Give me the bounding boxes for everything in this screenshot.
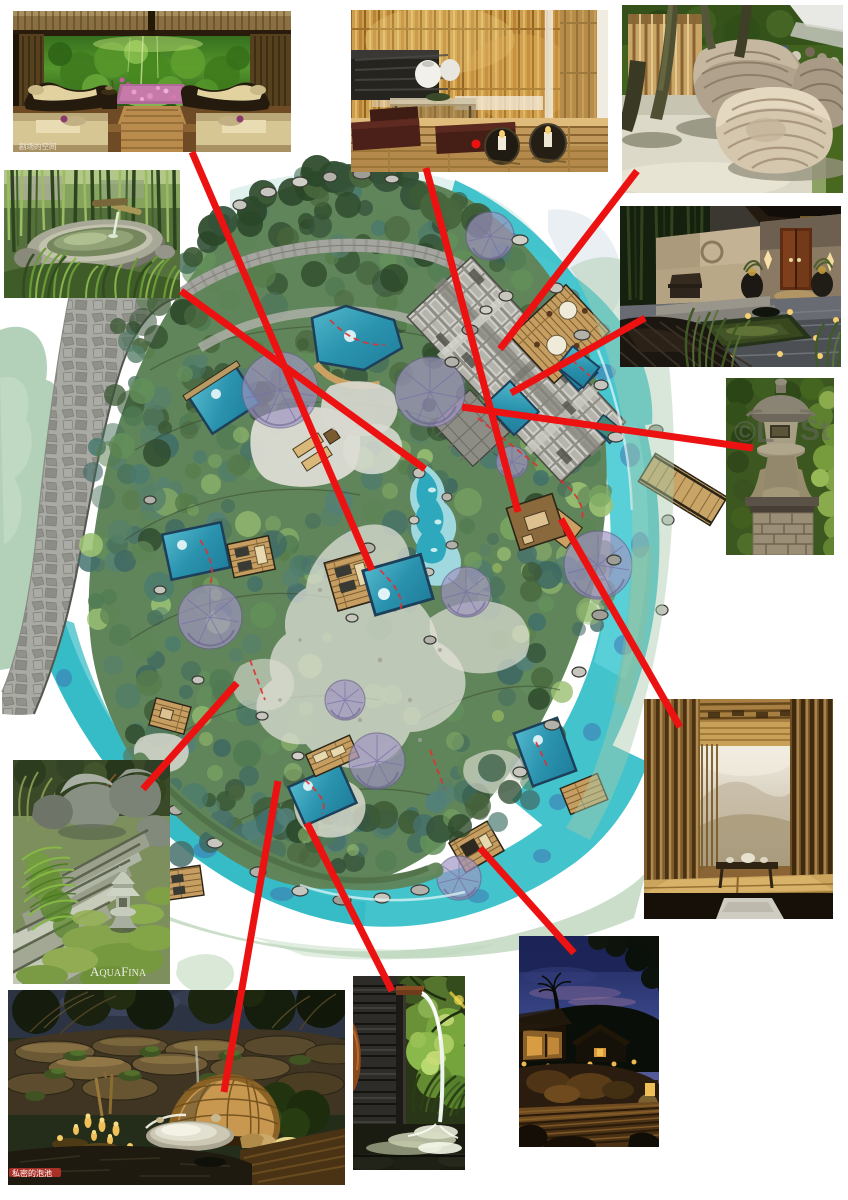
svg-text:剧场的空间: 剧场的空间 (19, 141, 57, 151)
svg-text:私密的泡池: 私密的泡池 (12, 1168, 52, 1178)
svg-text:St: St (800, 414, 830, 447)
